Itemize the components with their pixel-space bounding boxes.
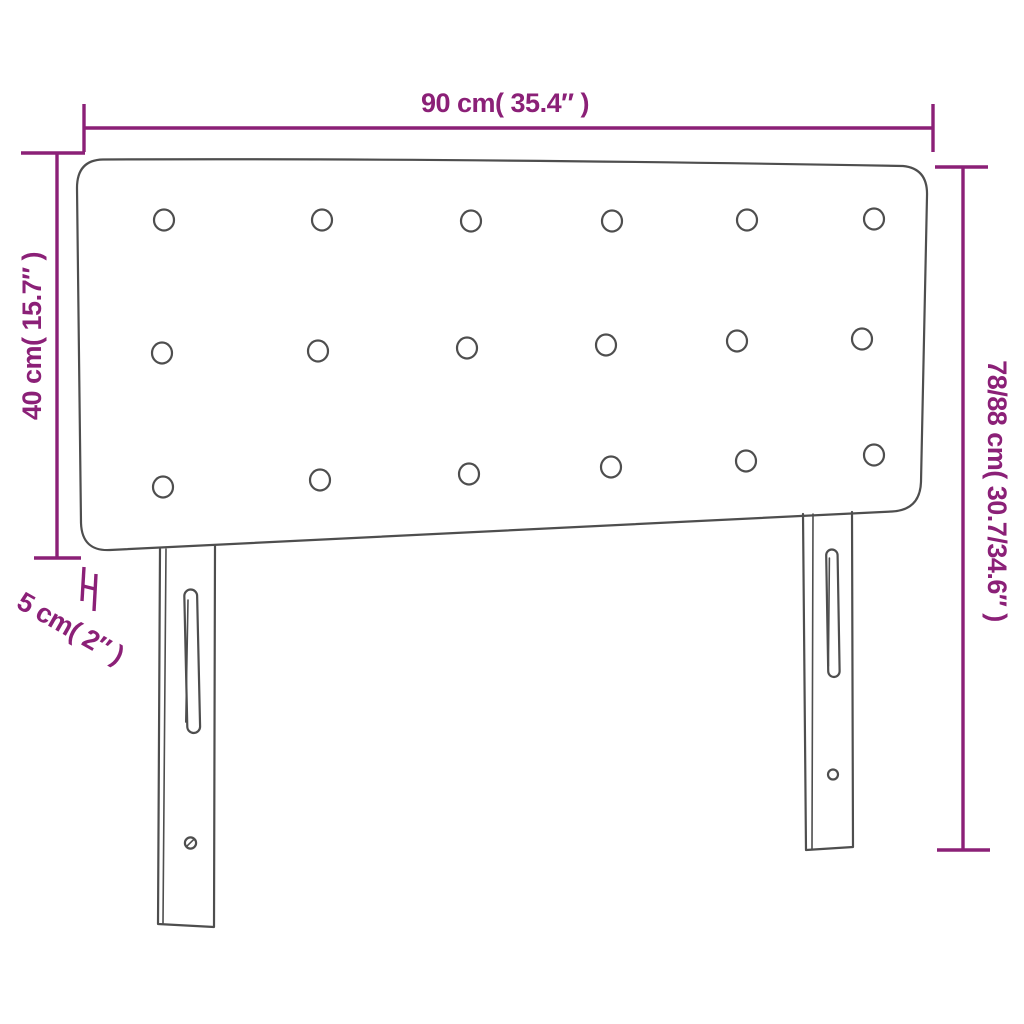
left-leg-screw-slot [187,839,194,846]
dimension-total-height: 78/88 cm( 30.7/34.6″ ) [935,167,1012,850]
headboard-panel [77,159,927,550]
tuft-button [308,341,328,362]
tufting-buttons [152,209,884,498]
left-leg-edge-line [163,549,166,923]
headboard-height-dimension-label: 40 cm( 15.7″ ) [17,252,47,420]
tuft-button [601,457,621,478]
tuft-button [736,451,756,472]
right-leg [803,512,853,850]
dimension-depth: 5 cm( 2″ ) [12,567,129,670]
tuft-button [312,210,332,231]
tuft-button [852,329,872,350]
tuft-button [864,445,884,466]
total-height-dimension-label: 78/88 cm( 30.7/34.6″ ) [982,360,1012,622]
right-leg-edge-line [812,514,813,849]
tuft-button [727,331,747,352]
headboard-dimension-diagram: 90 cm( 35.4″ ) 40 cm( 15.7″ ) 5 cm( 2″ )… [0,0,1024,1024]
tuft-button [602,211,622,232]
depth-dimension-label: 5 cm( 2″ ) [12,586,129,670]
left-leg [158,546,215,927]
tuft-button [154,210,174,231]
tuft-button [153,477,173,498]
tuft-button [864,209,884,230]
right-leg-screw-hole [828,770,838,780]
dimension-headboard-height: 40 cm( 15.7″ ) [17,153,85,558]
tuft-button [310,470,330,491]
left-leg-outline [158,546,215,927]
tuft-button [457,338,477,359]
headboard-panel-outline [77,159,927,550]
tuft-button [737,210,757,231]
right-leg-slot-inner-line [828,558,829,666]
right-leg-outline [803,512,853,850]
tuft-button [459,464,479,485]
tuft-button [152,343,172,364]
width-dimension-label: 90 cm( 35.4″ ) [421,88,589,118]
depth-tick-a [82,567,84,601]
dimension-width: 90 cm( 35.4″ ) [84,88,933,152]
tuft-button [461,211,481,232]
tuft-button [596,335,616,356]
depth-connector-line [83,586,95,589]
depth-tick-b [94,574,96,611]
